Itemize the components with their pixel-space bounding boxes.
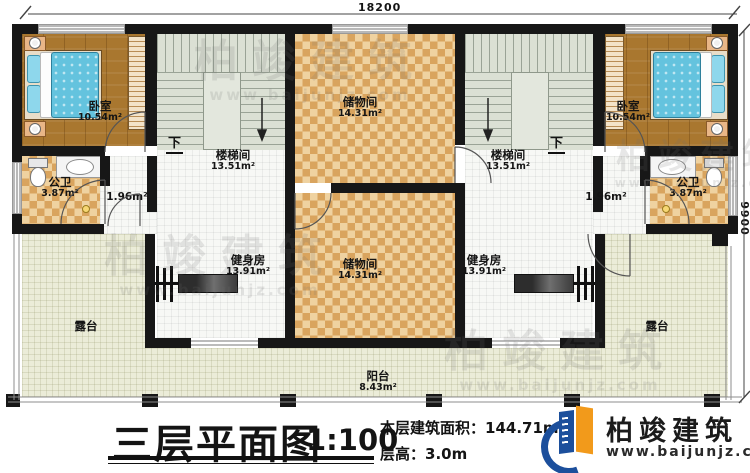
- room-label-terrace-left: 露台: [75, 320, 98, 333]
- room-label-hall-left: 1.96m²: [106, 191, 147, 203]
- window-bath-left: [12, 162, 22, 214]
- brand-website: www.baijunjz.com: [606, 444, 750, 460]
- railing-post: [6, 394, 20, 407]
- wall-hall-left-stub: [147, 156, 157, 212]
- railing-bottom: [8, 397, 742, 402]
- lamp-icon: [29, 123, 41, 135]
- window-bath-right: [728, 156, 738, 216]
- room-label-hall-right: 1.96m²: [585, 191, 626, 203]
- room-label-gym-left: 健身房 13.91m²: [226, 254, 270, 278]
- wall-bedroom-right-left: [593, 34, 605, 146]
- wall-storage-bottom: [258, 338, 492, 348]
- plan-title: 三层平面图: [112, 412, 322, 470]
- railing-post: [142, 394, 158, 407]
- room-label-bath-left: 公卫 3.87m²: [41, 176, 79, 200]
- stair-landing-right: [511, 72, 549, 150]
- lamp-icon: [711, 123, 723, 135]
- railing-post: [280, 394, 296, 407]
- wall-gym-left-terrace: [145, 234, 155, 348]
- floor-area-row: 本层建筑面积：144.71m²: [380, 417, 565, 438]
- sink-left: [66, 159, 94, 175]
- wall-bath-left-bottom: [12, 224, 104, 234]
- wall-gym-left-bottom: [145, 338, 191, 348]
- gym-bench-right: [514, 274, 574, 293]
- wall-bath-left-stub: [100, 156, 110, 186]
- railing-post: [426, 394, 442, 407]
- room-terrace-left: [22, 234, 145, 397]
- room-label-stair-left: 楼梯间 13.51m²: [211, 149, 255, 173]
- title-underline-thin: [108, 463, 374, 464]
- window-top-bedroom-left: [38, 24, 125, 34]
- sink-right: [658, 159, 686, 175]
- railing-terrace-left: [14, 234, 19, 400]
- brand-name: 柏竣建筑: [606, 409, 738, 448]
- floor-height-label: 层高：: [380, 445, 425, 463]
- room-label-gym-right: 健身房 13.91m²: [462, 254, 506, 278]
- floor-height-value: 3.0m: [425, 445, 467, 463]
- stair-down-label-left: 下: [166, 136, 183, 154]
- wall-storage-middle: [331, 183, 455, 193]
- stair-flight-top-left: [157, 34, 285, 72]
- pillow: [711, 55, 725, 83]
- logo-building-blue: [559, 410, 574, 454]
- sliding-door-gym-right: [492, 341, 560, 345]
- wall-storage-left: [285, 34, 295, 338]
- lamp-icon: [29, 37, 41, 49]
- stair-flight-right-left: [239, 72, 285, 148]
- room-terrace-right: [605, 234, 728, 397]
- wall-gym-right-terrace: [595, 234, 605, 348]
- room-label-bath-right: 公卫 3.87m²: [669, 176, 707, 200]
- room-gym-right: [465, 150, 593, 338]
- wall-bedroom-right-bottom: [645, 146, 738, 156]
- floorplan-canvas: 卧室 10.54m² 卧室 10.54m² 储物间 14.31m² 储物间 14…: [0, 0, 750, 473]
- wall-bedroom-left-right: [145, 34, 157, 146]
- wall-hall-right-stub: [593, 156, 603, 212]
- pillow: [27, 85, 41, 113]
- logo-building-orange: [576, 406, 593, 455]
- brand-logo-icon: [543, 405, 601, 467]
- room-label-balcony: 阳台 8.43m²: [359, 370, 397, 394]
- room-label-storage-center: 储物间 14.31m²: [338, 258, 382, 282]
- room-gym-left: [157, 150, 285, 338]
- floor-drain-icon: [662, 205, 670, 213]
- wall-bath-right-stub: [640, 156, 650, 186]
- title-underline: [108, 456, 374, 460]
- mattress: [653, 52, 701, 118]
- railing-post: [704, 394, 720, 407]
- railing-post: [712, 232, 728, 246]
- sliding-door-gym-left: [191, 341, 258, 345]
- room-label-stair-right: 楼梯间 13.51m²: [486, 149, 530, 173]
- wall-storage-right-upper: [455, 34, 465, 145]
- window-top-bedroom-right: [625, 24, 712, 34]
- pillow: [27, 55, 41, 83]
- floor-area-label: 本层建筑面积：: [380, 419, 485, 437]
- lamp-icon: [711, 37, 723, 49]
- room-label-storage-top: 储物间 14.31m²: [338, 96, 382, 120]
- toilet-right: [706, 167, 722, 187]
- floor-height-row: 层高：3.0m: [380, 443, 467, 464]
- stair-landing-left: [203, 72, 241, 150]
- window-top-storage: [332, 24, 408, 34]
- room-label-bedroom-right: 卧室 10.54m²: [606, 100, 650, 124]
- room-label-bedroom-left: 卧室 10.54m²: [78, 100, 122, 124]
- stair-flight-left-right: [465, 72, 511, 148]
- pillow: [711, 85, 725, 113]
- dimension-right: 9900: [738, 201, 750, 236]
- stair-flight-top-right: [465, 34, 593, 72]
- dimension-top: 18200: [358, 1, 401, 14]
- floor-drain-icon: [82, 205, 90, 213]
- stair-down-label-right: 下: [548, 136, 565, 154]
- room-label-terrace-right: 露台: [646, 320, 669, 333]
- wall-bedroom-left-bottom: [12, 146, 105, 156]
